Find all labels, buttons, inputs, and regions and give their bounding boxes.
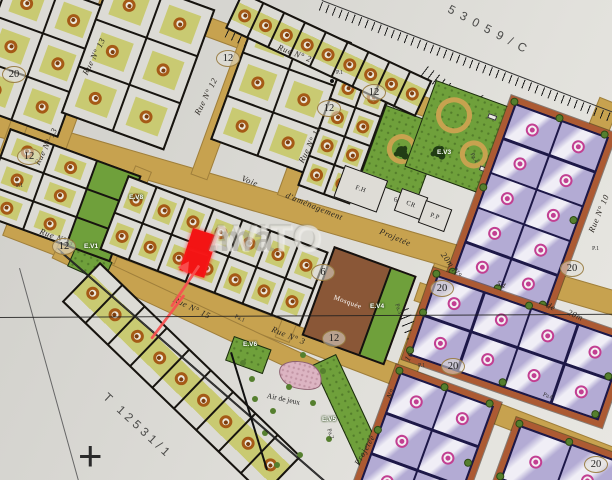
lot-marker bbox=[355, 118, 372, 135]
lot-marker bbox=[479, 351, 496, 368]
lot-marker bbox=[308, 167, 325, 184]
green-space-label: E.V4 bbox=[370, 303, 384, 310]
bush-icon bbox=[274, 462, 280, 468]
lot-marker bbox=[284, 293, 301, 310]
lot-marker bbox=[432, 335, 449, 352]
lot-inner bbox=[8, 0, 46, 22]
lot-marker bbox=[528, 454, 545, 471]
lot-marker bbox=[227, 272, 244, 289]
block-number: 12 bbox=[322, 330, 346, 347]
lot-inner bbox=[251, 277, 276, 306]
lot-marker bbox=[65, 12, 82, 29]
lot-marker bbox=[3, 38, 20, 55]
green-space-label: E.V6 bbox=[243, 341, 257, 348]
lot-inner bbox=[159, 4, 201, 44]
lot-marker bbox=[296, 91, 313, 108]
bush-icon bbox=[249, 376, 255, 382]
lot-number: 6 bbox=[394, 196, 398, 204]
lot-marker bbox=[217, 413, 235, 431]
lot-marker bbox=[379, 474, 396, 480]
lot-inner bbox=[137, 233, 162, 262]
lot-marker bbox=[172, 370, 190, 388]
lot-marker bbox=[524, 121, 541, 138]
point-dot bbox=[330, 79, 334, 83]
bench bbox=[479, 165, 489, 173]
point-label: P.1 bbox=[418, 363, 425, 369]
lot-inner bbox=[223, 266, 248, 295]
lot-marker bbox=[62, 159, 79, 176]
site-plan-map: AVITO.ma 53059/C T 12531/1 + MosquéeF.HC… bbox=[0, 0, 612, 480]
lot-marker bbox=[0, 81, 4, 98]
lot-marker bbox=[545, 207, 562, 224]
bush-icon bbox=[300, 352, 306, 358]
watermark-ext: .ma bbox=[208, 218, 275, 260]
green-space-label: E.V8 bbox=[129, 194, 143, 201]
block-number: 20 bbox=[430, 280, 454, 297]
lot-marker bbox=[558, 173, 575, 190]
lot-inner bbox=[151, 197, 176, 226]
green-space-label: E.V1 bbox=[84, 243, 98, 250]
block-number: 20 bbox=[560, 260, 584, 277]
lot-marker bbox=[150, 348, 168, 366]
lot-inner bbox=[280, 287, 305, 316]
lot-marker bbox=[121, 0, 138, 14]
playground-label: Air de jeux bbox=[266, 391, 301, 407]
lot-marker bbox=[255, 282, 272, 299]
block-number: 12 bbox=[216, 50, 240, 67]
lot-inner bbox=[126, 97, 168, 137]
lot-marker bbox=[474, 259, 491, 276]
lot-marker bbox=[142, 239, 159, 256]
block-number: 12 bbox=[17, 148, 41, 165]
green-space-label: E.V3 bbox=[437, 149, 451, 156]
lot-marker bbox=[587, 344, 604, 361]
lot-marker bbox=[106, 305, 124, 323]
lot-marker bbox=[239, 434, 257, 452]
bush-icon bbox=[252, 396, 258, 402]
bush-icon bbox=[320, 368, 326, 374]
street-label: de bbox=[545, 300, 558, 313]
lot-marker bbox=[404, 85, 421, 102]
lot-marker bbox=[87, 90, 104, 107]
block-number: 20 bbox=[2, 66, 26, 83]
lot-marker bbox=[52, 187, 69, 204]
lot-marker bbox=[570, 138, 587, 155]
bush-icon bbox=[286, 384, 292, 390]
lot-marker bbox=[540, 328, 557, 345]
plus-mark: + bbox=[78, 432, 103, 480]
lot-inner bbox=[54, 154, 87, 180]
block-number: 12 bbox=[362, 84, 386, 101]
block-number: 20 bbox=[441, 358, 465, 375]
mosque-label: Mosquée bbox=[333, 293, 363, 310]
lot-marker bbox=[234, 117, 251, 134]
point-label: P.1 bbox=[16, 183, 23, 189]
sheet-number: 53059/C bbox=[445, 2, 535, 59]
lot-marker bbox=[520, 276, 537, 293]
lot-marker bbox=[454, 410, 471, 427]
point-label: P.1 bbox=[592, 246, 599, 252]
lot-inner bbox=[352, 115, 373, 138]
lot-inner bbox=[0, 194, 23, 220]
lot-marker bbox=[526, 367, 543, 384]
lot-inner bbox=[316, 135, 337, 158]
facility-lot-pp: P.P bbox=[418, 200, 453, 232]
lot-marker bbox=[362, 65, 379, 82]
lot-marker bbox=[250, 74, 267, 91]
point-label: P.1 bbox=[336, 70, 343, 76]
lot-marker bbox=[257, 17, 274, 34]
lot-marker bbox=[104, 44, 121, 61]
lot-marker bbox=[280, 134, 297, 151]
lot-marker bbox=[499, 190, 516, 207]
block-number: 6 bbox=[311, 264, 335, 281]
lot-inner bbox=[23, 88, 61, 125]
green-space-label: E.V5 bbox=[322, 416, 336, 423]
lot-marker bbox=[172, 16, 189, 33]
lot-marker bbox=[155, 62, 172, 79]
lot-marker bbox=[319, 138, 336, 155]
lot-inner bbox=[306, 164, 327, 187]
lot-inner bbox=[143, 51, 185, 91]
bush-icon bbox=[310, 400, 316, 406]
lot-marker bbox=[440, 450, 457, 467]
bush-icon bbox=[240, 360, 246, 366]
lot-inner bbox=[39, 45, 77, 82]
lot-inner bbox=[0, 28, 31, 65]
lot-marker bbox=[19, 0, 36, 12]
bush-icon bbox=[270, 408, 276, 414]
lot-inner bbox=[109, 222, 134, 251]
lot-marker bbox=[511, 156, 528, 173]
lot-marker bbox=[34, 98, 51, 115]
lot-marker bbox=[236, 7, 253, 24]
park-path-ring bbox=[431, 92, 477, 138]
lot-marker bbox=[533, 242, 550, 259]
lot-inner bbox=[44, 182, 77, 208]
bench bbox=[487, 113, 497, 121]
lot-marker bbox=[113, 228, 130, 245]
lot-inner bbox=[75, 78, 117, 118]
lot-inner bbox=[239, 64, 277, 101]
lot-inner bbox=[223, 107, 261, 144]
street-label: Rue N° 10 bbox=[586, 193, 611, 234]
lot-marker bbox=[320, 46, 337, 63]
lot-marker bbox=[446, 296, 463, 313]
lot-marker bbox=[486, 225, 503, 242]
lot-marker bbox=[0, 199, 15, 216]
lot-marker bbox=[278, 26, 295, 43]
block-number: 12 bbox=[52, 238, 76, 255]
lot-marker bbox=[393, 433, 410, 450]
lot-block bbox=[356, 372, 494, 480]
block-number: 20 bbox=[584, 456, 608, 473]
lot-marker bbox=[573, 383, 590, 400]
lot-inner bbox=[55, 2, 93, 39]
lot-marker bbox=[195, 391, 213, 409]
lot-marker bbox=[344, 147, 361, 164]
lot-inner bbox=[109, 0, 151, 26]
lot-marker bbox=[138, 109, 155, 126]
lot-marker bbox=[128, 327, 146, 345]
lot-marker bbox=[579, 472, 596, 480]
lot-marker bbox=[341, 56, 358, 73]
lot-marker bbox=[408, 393, 425, 410]
lot-marker bbox=[156, 202, 173, 219]
block-number: 12 bbox=[317, 100, 341, 117]
lot-inner bbox=[342, 144, 363, 167]
lot-marker bbox=[50, 55, 67, 72]
